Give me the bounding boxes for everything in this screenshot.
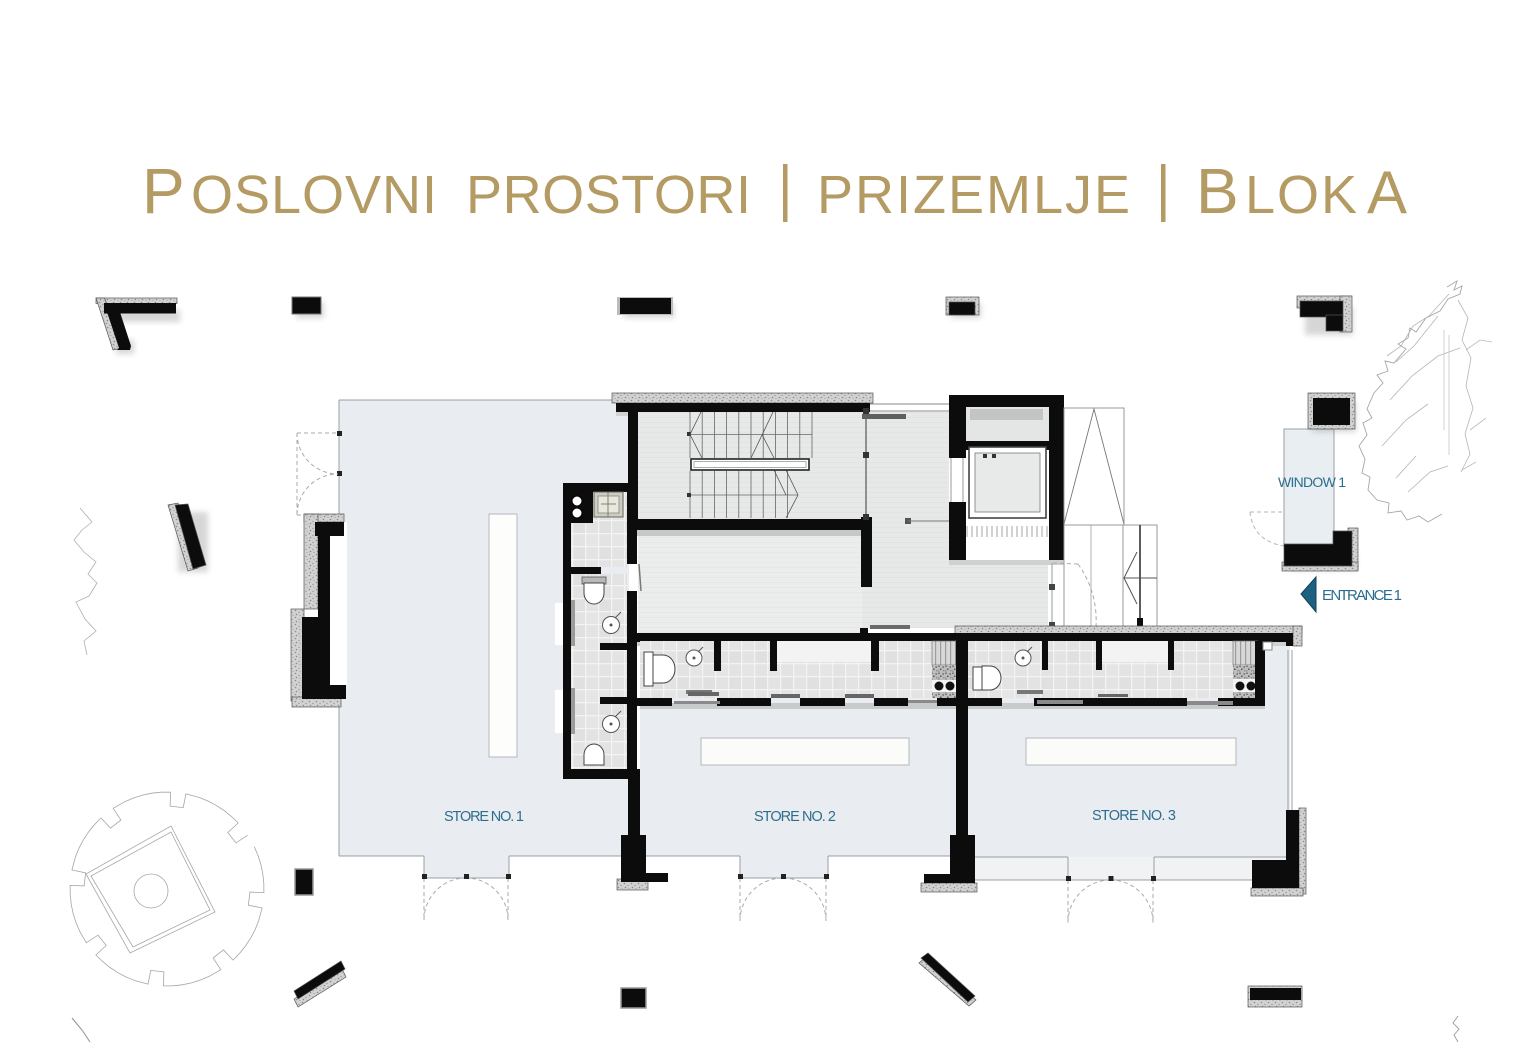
svg-text:P: P (142, 155, 185, 227)
svg-text:OSLOVNI: OSLOVNI (191, 165, 437, 225)
svg-text:STORE NO. 3: STORE NO. 3 (1092, 808, 1176, 824)
svg-text:WINDOW 1: WINDOW 1 (1278, 474, 1346, 490)
svg-text:PRIZEMLJE: PRIZEMLJE (817, 165, 1130, 225)
svg-text:STORE NO. 1: STORE NO. 1 (444, 809, 524, 825)
svg-text:STORE NO. 2: STORE NO. 2 (754, 809, 836, 825)
svg-text:PROSTORI: PROSTORI (466, 165, 751, 225)
svg-text:ENTRANCE 1: ENTRANCE 1 (1322, 587, 1402, 604)
svg-text:B: B (1196, 155, 1239, 227)
svg-text:LOK: LOK (1245, 165, 1357, 225)
svg-text:A: A (1367, 159, 1407, 226)
